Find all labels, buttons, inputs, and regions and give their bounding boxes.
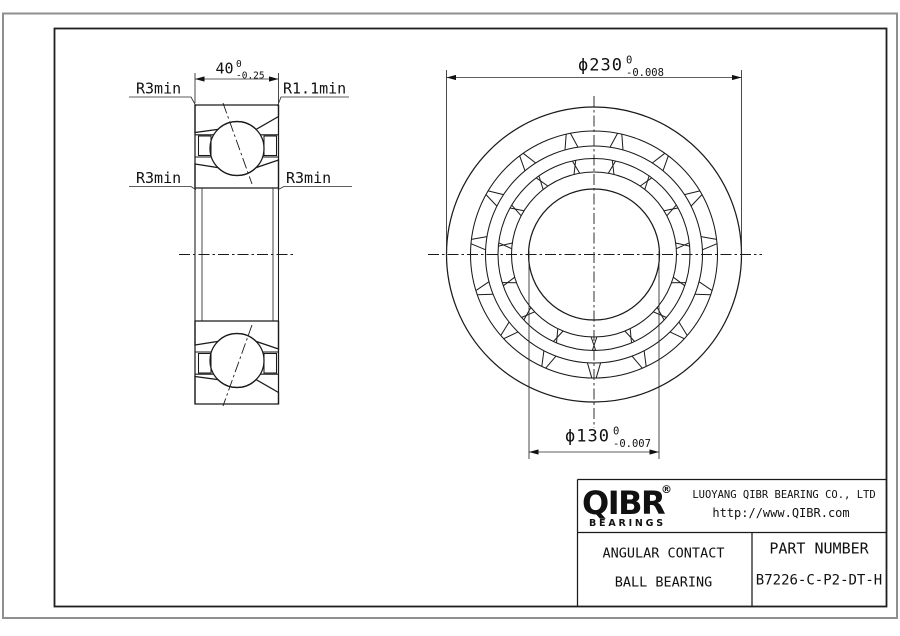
cage-section-left xyxy=(199,136,212,156)
bore-dia-tol-upper: 0 xyxy=(613,426,619,438)
company-logo: QIBR ® BEARINGS xyxy=(582,483,672,529)
outer-dia-tol-lower: -0.008 xyxy=(626,67,664,79)
label-r3min-top-left: R3min xyxy=(136,80,181,98)
inner-ring-top-section xyxy=(195,160,279,188)
chamfer-labels: R3min R1.1min R3min R3min xyxy=(129,80,352,190)
section-view: 40 0 -0.25 R3min R1.1min R3min R3min xyxy=(129,59,352,406)
part-number-label: PART NUMBER xyxy=(769,540,869,558)
title-block: QIBR ® BEARINGS LUOYANG QIBR BEARING CO.… xyxy=(578,480,887,607)
width-dim-tol-lower: -0.25 xyxy=(236,71,265,82)
cage-bottom-section xyxy=(195,352,279,374)
company-name: LUOYANG QIBR BEARING CO., LTD xyxy=(692,489,875,501)
outer-dia-value: ϕ230 xyxy=(578,56,623,76)
cage-section-right xyxy=(264,136,277,156)
registered-trademark-icon: ® xyxy=(661,483,672,496)
cage-section-left-bottom xyxy=(199,354,212,374)
outer-border xyxy=(3,14,897,619)
company-website: http://www.QIBR.com xyxy=(712,506,849,520)
ball-top xyxy=(210,122,264,176)
contact-angle-centerline-top xyxy=(223,103,252,184)
outer-ring-top-section xyxy=(195,105,279,133)
inner-ring-bottom-section xyxy=(195,321,279,349)
bore-dia-value: ϕ130 xyxy=(565,427,610,447)
ball-bottom xyxy=(210,334,264,388)
product-type-line1: ANGULAR CONTACT xyxy=(603,546,725,562)
outer-dia-tol-upper: 0 xyxy=(626,55,632,67)
width-dim-tol-upper: 0 xyxy=(236,59,242,70)
part-number-value: B7226-C-P2-DT-H xyxy=(756,573,882,589)
width-dimension: 40 0 -0.25 xyxy=(195,59,279,103)
cage-section-right-bottom xyxy=(264,354,277,374)
product-type-line2: BALL BEARING xyxy=(615,575,713,591)
bore-dia-tol-lower: -0.007 xyxy=(613,438,651,450)
logo-text: QIBR xyxy=(582,484,665,522)
label-r3min-mid-right: R3min xyxy=(286,169,331,187)
contact-angle-centerline-bottom xyxy=(223,325,252,406)
label-r3min-mid-left: R3min xyxy=(136,169,181,187)
drawing-page: 40 0 -0.25 R3min R1.1min R3min R3min xyxy=(0,0,900,636)
label-r1-1min-top-right: R1.1min xyxy=(283,80,346,98)
front-view: ϕ230 0 -0.008 ϕ130 0 -0.007 xyxy=(428,55,762,460)
logo-subtext: BEARINGS xyxy=(589,518,666,529)
bearing-drawing: 40 0 -0.25 R3min R1.1min R3min R3min xyxy=(0,0,900,636)
outer-ring-bottom-section xyxy=(195,377,279,405)
cage-top-section xyxy=(195,135,279,157)
width-dim-value: 40 xyxy=(215,60,233,78)
